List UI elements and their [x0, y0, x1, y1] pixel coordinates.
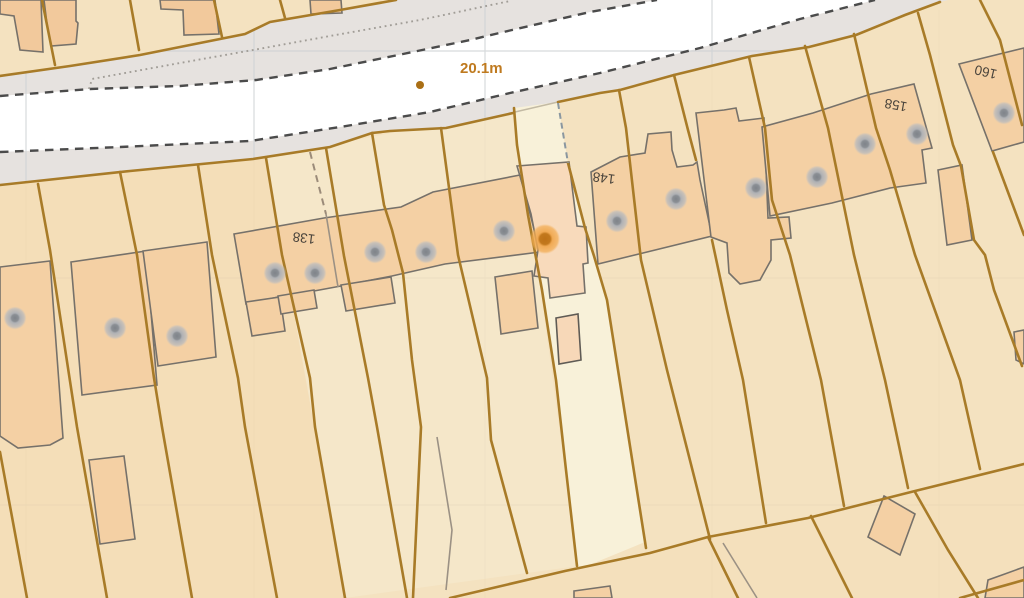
- svg-text:138: 138: [292, 229, 316, 247]
- svg-text:148: 148: [592, 169, 616, 187]
- svg-text:20.1m: 20.1m: [460, 60, 503, 77]
